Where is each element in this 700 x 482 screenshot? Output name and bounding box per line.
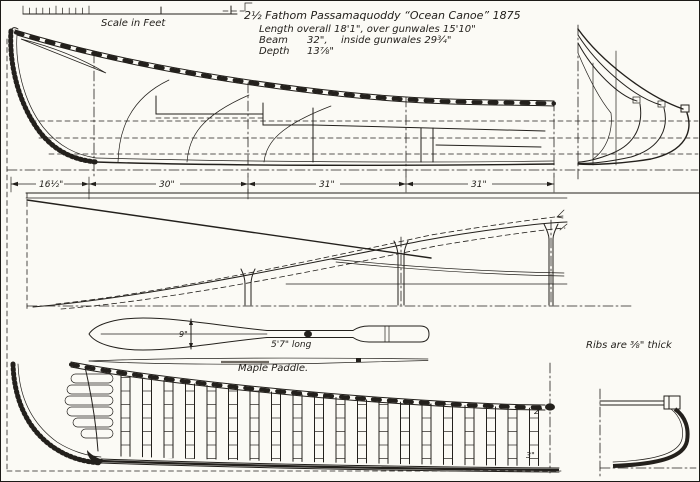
beam-label: Beam <box>259 35 288 46</box>
blade-width-label: 9" <box>179 330 188 339</box>
scale-bar-fine-ticks <box>23 6 89 14</box>
plan-drawing: Scale in Feet 2½ Fathom Passamaquoddy “O… <box>1 1 700 482</box>
seat-and-rail-lines <box>156 96 545 162</box>
section-rib-inner <box>613 409 683 462</box>
keel-thickness-label: 3" <box>526 451 535 460</box>
scale-bar-foot-ticks <box>161 6 231 14</box>
scale-bar: Scale in Feet <box>23 3 252 29</box>
midship-section-detail <box>600 389 696 478</box>
plan-inwale-curves <box>286 259 567 284</box>
beam-rest: inside gunwales 29¾" <box>341 35 451 46</box>
paddle-shaft-wrap <box>304 331 312 338</box>
depth-value: 13⅞" <box>307 46 334 57</box>
half-breadth-plan <box>26 189 699 310</box>
interior-stem-inner <box>18 364 101 457</box>
garboard-line <box>96 158 554 162</box>
station-lines <box>94 53 554 177</box>
interior-view: 2" 3" <box>7 362 561 473</box>
thwart-station-2 <box>241 269 255 305</box>
section-rib-curve <box>613 409 688 466</box>
plan-diagonal <box>27 200 431 258</box>
rib-field <box>109 374 544 466</box>
plan-curve-end-ticks <box>557 210 567 230</box>
dimension-label-1: 16½" <box>39 180 63 190</box>
dimension-label-2: 30" <box>159 180 175 190</box>
blade-width-dimension: 9" <box>179 319 193 349</box>
gunwale-end-cap <box>545 403 555 410</box>
beam-value: 32", <box>307 35 328 46</box>
gunwale-thickness-label: 2" <box>534 407 543 416</box>
dimension-label-backgrounds <box>36 177 492 190</box>
ribs-note: Ribs are ⅜" thick <box>586 340 673 351</box>
paddle-name-label: Maple Paddle. <box>238 363 308 374</box>
thwart-station-4 <box>544 220 558 305</box>
thwart-station-3 <box>394 237 408 305</box>
keel-line <box>96 162 554 165</box>
depth-label: Depth <box>259 46 289 57</box>
paddle-drawing: 9" 5'7" long Maple Paddle. <box>89 318 429 374</box>
plan-thwarts <box>241 220 558 305</box>
dimension-line: 16½" 30" 31" 31" <box>11 177 554 192</box>
body-plan <box>578 25 689 179</box>
title-line: 2½ Fathom Passamaquoddy “Ocean Canoe” 18… <box>244 9 521 22</box>
paddle-length-label: 5'7" long <box>271 340 312 350</box>
dimension-label-4: 31" <box>471 180 487 190</box>
plan-station-ticks <box>89 189 248 199</box>
dimension-label-3: 31" <box>319 180 335 190</box>
length-line: Length overall 18'1", over gunwales 15'1… <box>259 24 476 35</box>
first-rib-curve <box>85 367 98 451</box>
canoe-plan-sheet: Scale in Feet 2½ Fathom Passamaquoddy “O… <box>0 0 700 482</box>
title-block: 2½ Fathom Passamaquoddy “Ocean Canoe” 18… <box>244 9 521 57</box>
section-thwart <box>600 396 680 409</box>
plan-gunwale-curves <box>33 216 567 309</box>
scale-bar-label: Scale in Feet <box>101 18 166 29</box>
grip-joint-lines <box>385 326 389 342</box>
